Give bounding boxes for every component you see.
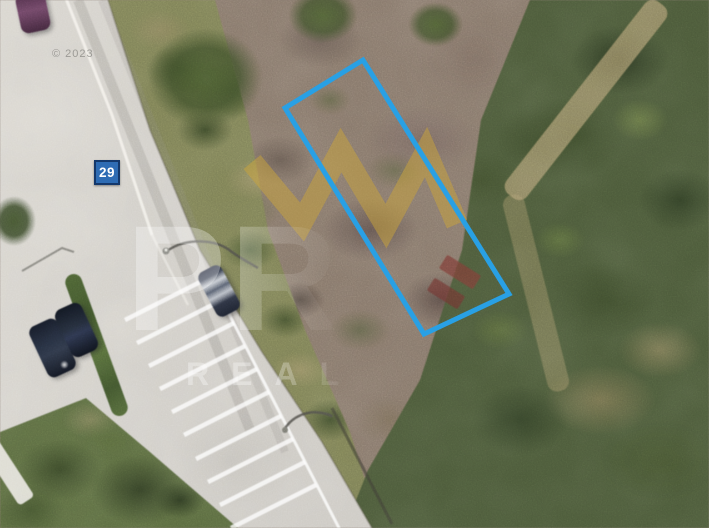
watermark-sub-text: REAL — [186, 356, 361, 393]
route-number-badge: 29 — [94, 160, 120, 185]
satellite-map-image: 29 PR REAL © 2023 — [0, 0, 709, 528]
map-overlays — [0, 0, 709, 528]
imagery-copyright-text: © 2023 — [52, 48, 94, 60]
watermark-big-text: PR — [126, 203, 342, 353]
route-number: 29 — [99, 165, 115, 180]
